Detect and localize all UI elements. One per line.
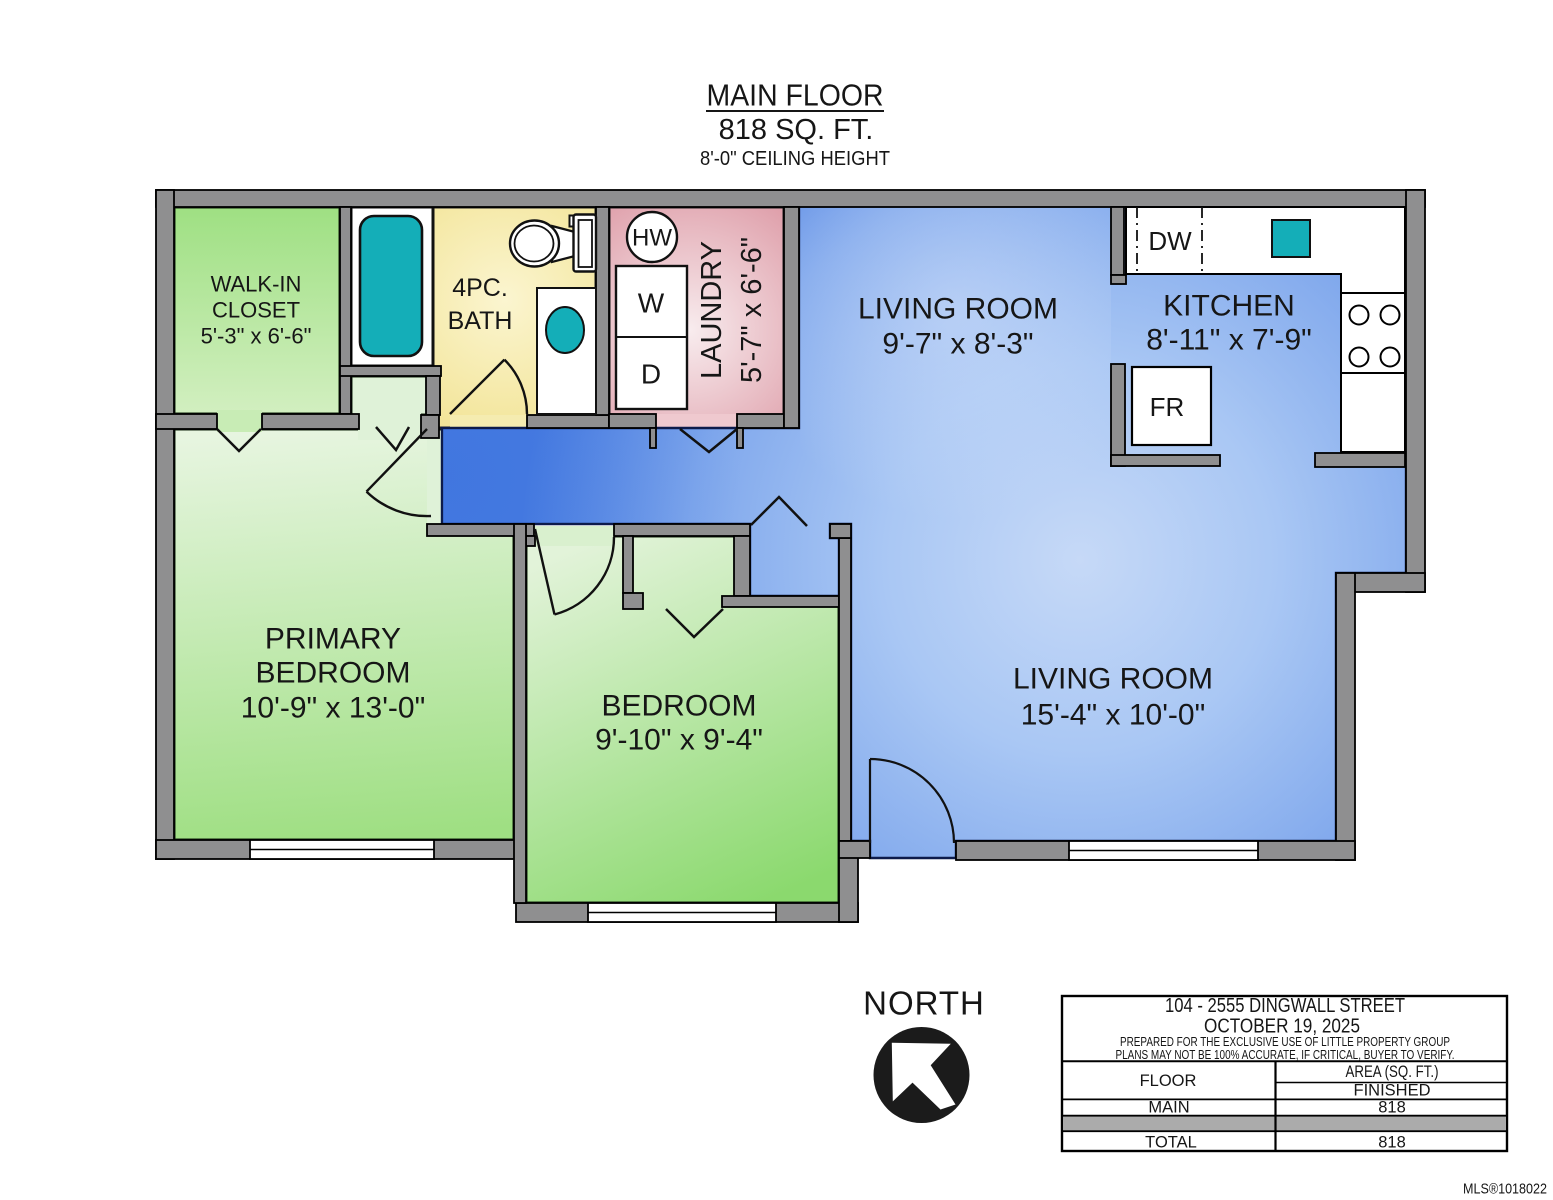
- svg-text:PLANS MAY NOT BE 100% ACCURATE: PLANS MAY NOT BE 100% ACCURATE, IF CRITI…: [1116, 1047, 1455, 1062]
- svg-text:15'-4" x 10'-0": 15'-4" x 10'-0": [1021, 699, 1206, 732]
- svg-text:FINISHED: FINISHED: [1353, 1082, 1430, 1100]
- svg-text:MAIN FLOOR: MAIN FLOOR: [707, 78, 884, 113]
- svg-text:8'-11" x 7'-9": 8'-11" x 7'-9": [1146, 324, 1312, 357]
- svg-text:PRIMARY: PRIMARY: [265, 623, 401, 656]
- svg-text:9'-7" x 8'-3": 9'-7" x 8'-3": [882, 328, 1033, 361]
- svg-text:DW: DW: [1148, 226, 1192, 256]
- svg-text:W: W: [638, 288, 665, 319]
- svg-text:FR: FR: [1150, 392, 1185, 422]
- svg-text:5'-3" x 6'-6": 5'-3" x 6'-6": [201, 324, 312, 349]
- svg-text:FLOOR: FLOOR: [1140, 1072, 1197, 1090]
- svg-text:D: D: [641, 359, 661, 390]
- svg-text:BEDROOM: BEDROOM: [255, 657, 410, 690]
- svg-text:4PC.: 4PC.: [452, 274, 508, 302]
- svg-text:KITCHEN: KITCHEN: [1163, 290, 1295, 323]
- svg-text:NORTH: NORTH: [863, 985, 985, 1022]
- svg-text:818: 818: [1378, 1099, 1406, 1117]
- svg-text:WALK-IN: WALK-IN: [211, 272, 302, 297]
- svg-text:HW: HW: [632, 225, 672, 252]
- svg-text:BEDROOM: BEDROOM: [601, 690, 756, 723]
- svg-text:LIVING ROOM: LIVING ROOM: [1013, 663, 1213, 696]
- svg-text:818 SQ. FT.: 818 SQ. FT.: [719, 114, 874, 146]
- svg-text:AREA (SQ. FT.): AREA (SQ. FT.): [1346, 1063, 1439, 1081]
- svg-text:10'-9" x 13'-0": 10'-9" x 13'-0": [241, 692, 426, 725]
- svg-text:BATH: BATH: [448, 307, 513, 335]
- svg-text:8'-0" CEILING HEIGHT: 8'-0" CEILING HEIGHT: [700, 148, 890, 170]
- svg-text:5'-7" x 6'-6": 5'-7" x 6'-6": [736, 237, 768, 383]
- svg-text:CLOSET: CLOSET: [212, 298, 300, 323]
- svg-text:818: 818: [1378, 1134, 1406, 1152]
- svg-text:9'-10" x 9'-4": 9'-10" x 9'-4": [595, 724, 763, 757]
- svg-text:LIVING ROOM: LIVING ROOM: [858, 293, 1058, 326]
- svg-text:TOTAL: TOTAL: [1145, 1134, 1197, 1152]
- svg-text:LAUNDRY: LAUNDRY: [696, 241, 728, 379]
- svg-text:MLS®1018022: MLS®1018022: [1463, 1181, 1547, 1198]
- svg-text:MAIN: MAIN: [1148, 1099, 1189, 1117]
